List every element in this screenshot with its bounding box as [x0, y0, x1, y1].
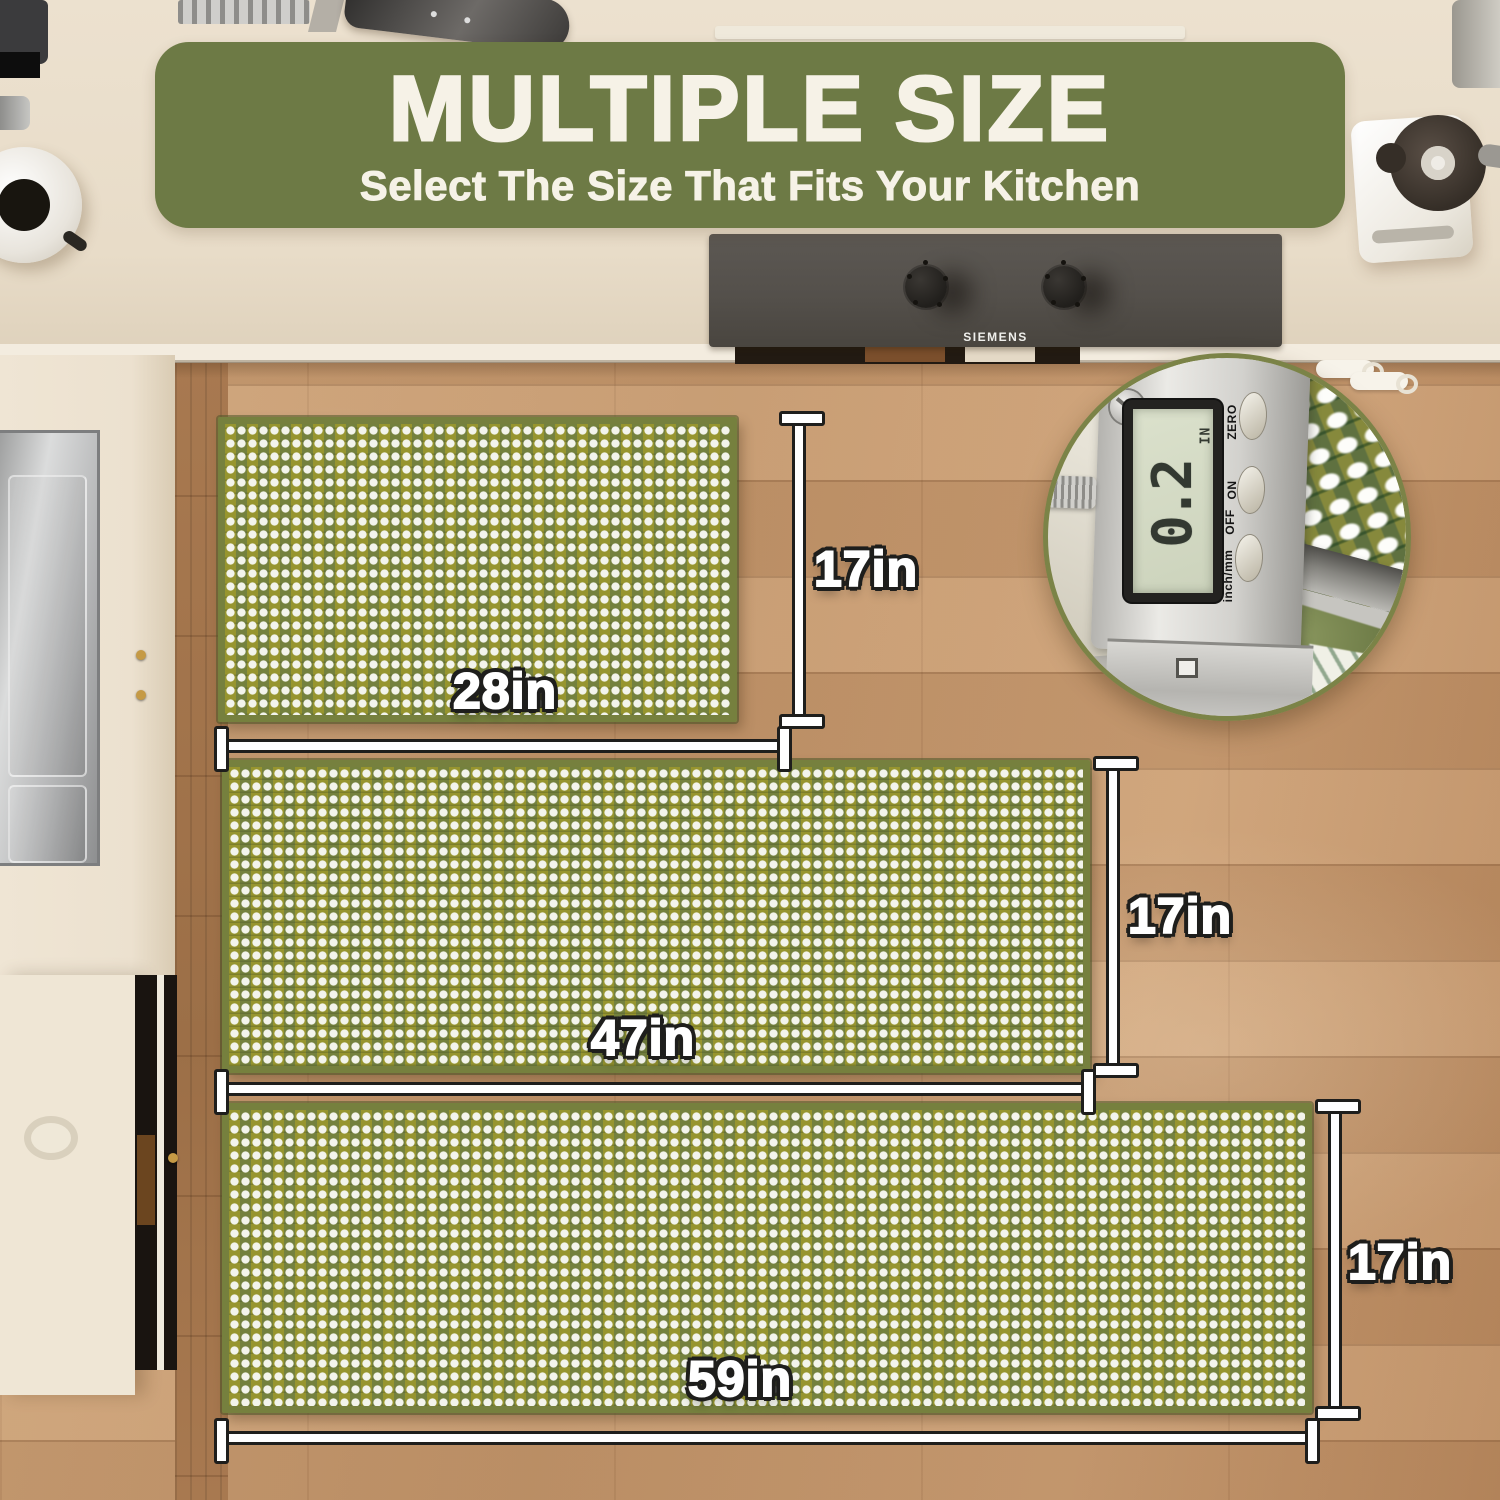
cabinet-shelf	[137, 1135, 155, 1225]
product-size-infographic: SIEMENS	[0, 0, 1500, 1500]
height-label-medium: 17in	[1128, 891, 1232, 941]
headline-banner: MULTIPLE SIZE Select The Size That Fits …	[155, 42, 1345, 228]
under-counter-recess	[735, 344, 1080, 364]
stainless-appliance	[0, 430, 100, 866]
plant-pot	[24, 1116, 78, 1160]
caliper-slider	[1105, 638, 1314, 721]
counter-ledge	[715, 26, 1185, 39]
appliance-door-panel	[8, 475, 87, 777]
recess-light-item	[965, 346, 1035, 362]
dimension-line-width-medium	[214, 1069, 1096, 1109]
caliper-lcd-screen: 0.2 IN	[1133, 409, 1213, 593]
cooktop-panel: SIEMENS	[709, 234, 1282, 347]
caliper-slider-hole	[1176, 658, 1198, 678]
machine-knob	[0, 96, 30, 130]
dimension-line-height-medium	[1093, 756, 1133, 1078]
cabinet-knob	[136, 650, 146, 660]
caliper-mode-label: inch/mm	[1222, 550, 1234, 603]
machine-slot	[0, 52, 40, 78]
appliance-drawer-panel	[8, 785, 87, 863]
banner-subtitle: Select The Size That Fits Your Kitchen	[360, 165, 1141, 207]
open-cabinet	[135, 975, 177, 1370]
cabinet-knob	[168, 1153, 178, 1163]
width-label-small: 28in	[453, 666, 557, 716]
cabinet-door-edge	[157, 975, 164, 1370]
thickness-reading: 0.2	[1146, 462, 1200, 548]
banner-title: MULTIPLE SIZE	[389, 63, 1111, 155]
electric-kettle	[1390, 115, 1486, 211]
cabinet-knob	[136, 690, 146, 700]
thickness-unit: IN	[1200, 427, 1213, 445]
kitchen-island	[0, 975, 135, 1395]
caliper-off-label: OFF	[1224, 509, 1236, 535]
caliper-zero-label: ZERO	[1226, 404, 1238, 439]
height-label-large: 17in	[1348, 1237, 1452, 1287]
cooktop-brand: SIEMENS	[963, 331, 1028, 343]
recess-wood-item	[865, 346, 945, 362]
height-label-small: 17in	[814, 544, 918, 594]
caliper-display: 0.2 IN	[1124, 400, 1222, 602]
moka-pot	[1452, 0, 1500, 88]
caliper-thumbwheel	[1043, 475, 1097, 509]
width-label-large: 59in	[688, 1354, 792, 1404]
dimension-line-width-large	[214, 1418, 1320, 1458]
thickness-detail-inset: 0.2 IN ZERO ON OFF inch/mm	[1043, 353, 1411, 721]
cooktop-knob	[1043, 266, 1085, 308]
width-label-medium: 47in	[591, 1013, 695, 1063]
dimension-line-height-small	[779, 411, 819, 729]
metal-grate	[178, 0, 310, 24]
dimension-line-width-small	[214, 726, 792, 766]
cooktop-knob	[905, 266, 947, 308]
